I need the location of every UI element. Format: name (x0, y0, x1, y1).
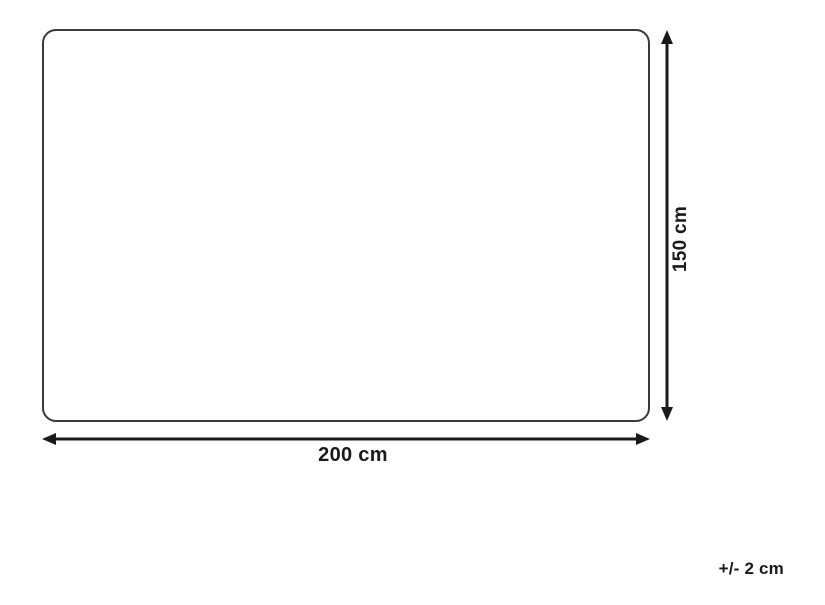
width-arrow-line (48, 438, 644, 441)
arrow-down-icon (661, 407, 673, 421)
dimension-diagram: 150 cm 200 cm +/- 2 cm (0, 0, 825, 605)
width-dimension-label: 200 cm (318, 444, 388, 467)
arrow-left-icon (42, 433, 56, 445)
product-outline (42, 29, 650, 422)
tolerance-note: +/- 2 cm (719, 559, 784, 579)
arrow-right-icon (636, 433, 650, 445)
height-arrow-line (666, 36, 669, 415)
height-dimension-label: 150 cm (670, 206, 692, 272)
arrow-up-icon (661, 30, 673, 44)
